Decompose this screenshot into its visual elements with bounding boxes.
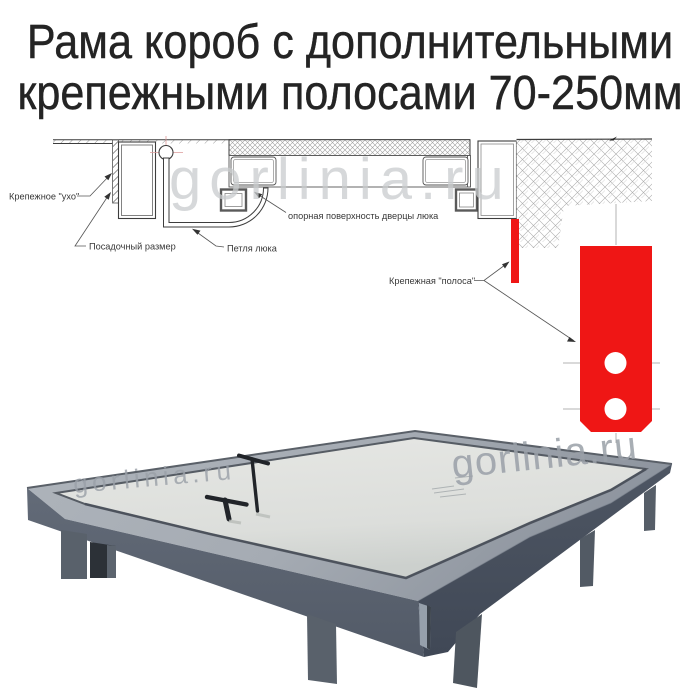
svg-text:Крепежное "ухо": Крепежное "ухо" xyxy=(9,192,79,202)
svg-text:Петля люка: Петля люка xyxy=(227,244,278,254)
svg-text:gorlinia.ru: gorlinia.ru xyxy=(169,147,512,212)
svg-text:опорная поверхность дверцы люк: опорная поверхность дверцы люка xyxy=(288,211,439,221)
svg-text:Посадочный размер: Посадочный размер xyxy=(89,242,176,252)
svg-text:Крепежная "полоса": Крепежная "полоса" xyxy=(389,276,475,286)
